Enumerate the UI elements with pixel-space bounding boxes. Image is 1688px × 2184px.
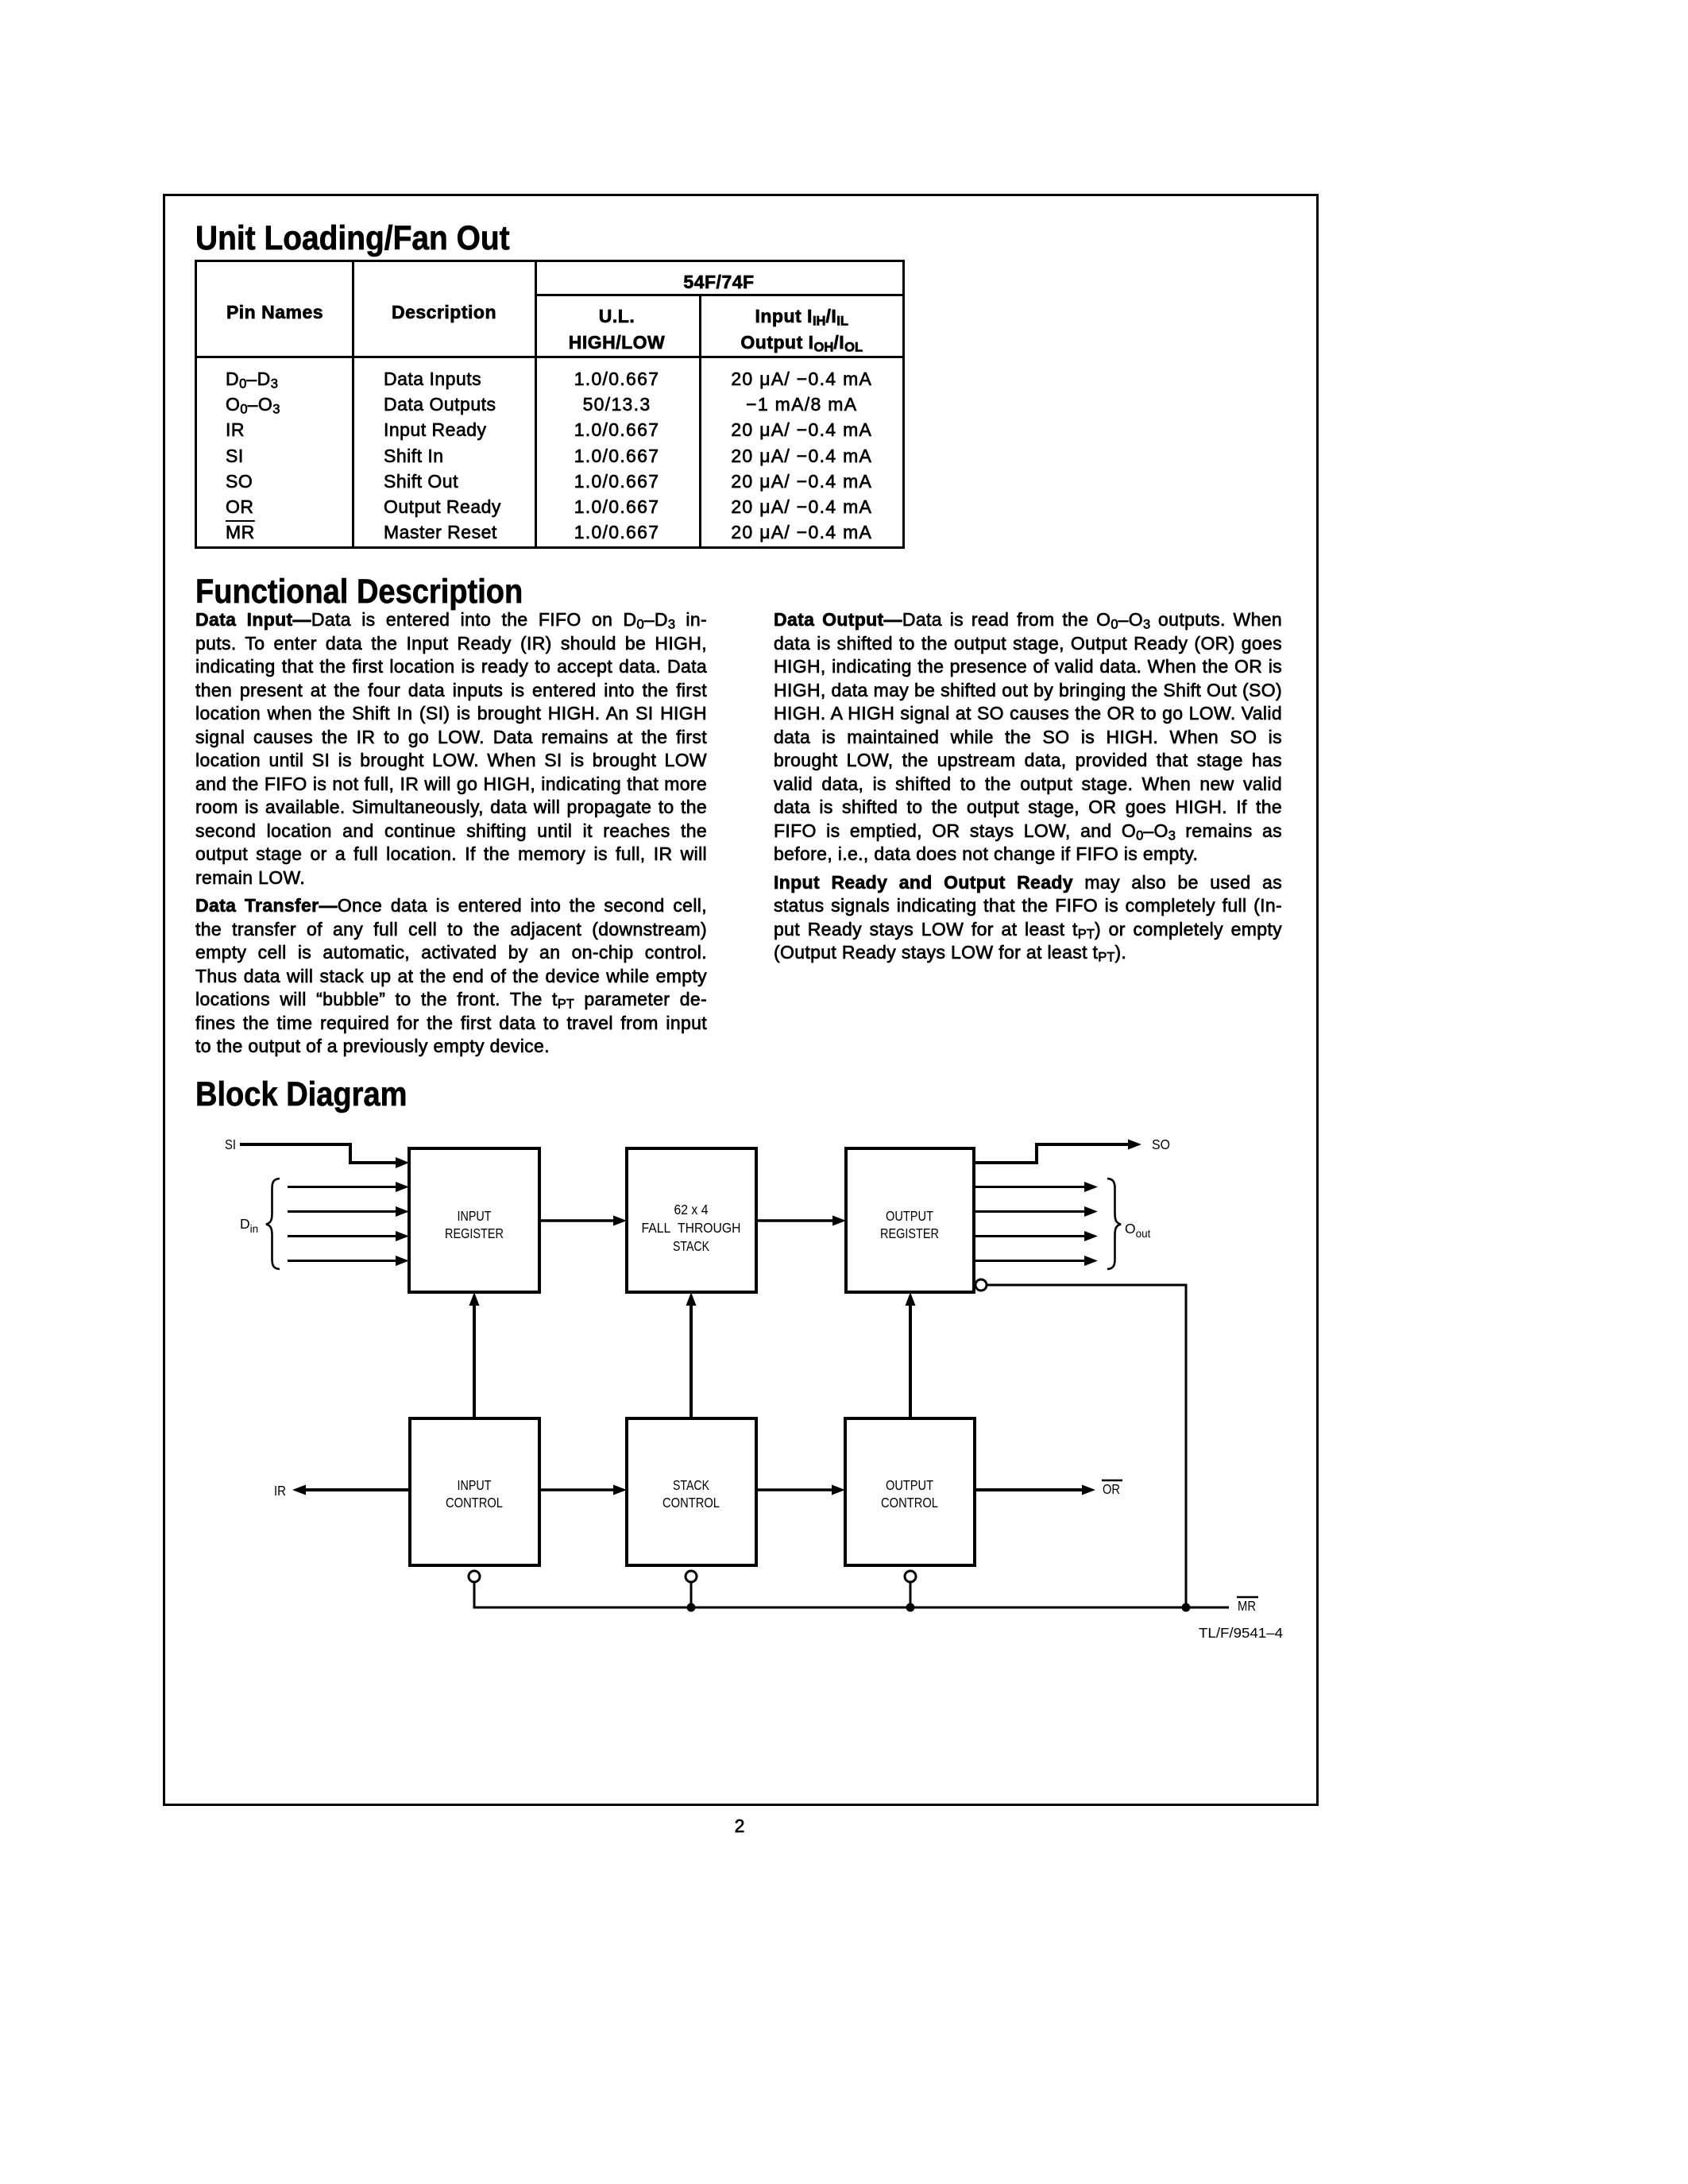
svg-text:OR: OR (1103, 1481, 1120, 1497)
svg-text:Din: Din (240, 1216, 258, 1235)
svg-text:REGISTER: REGISTER (445, 1225, 504, 1241)
svg-text:CONTROL: CONTROL (446, 1495, 503, 1511)
svg-text:STACK: STACK (673, 1477, 709, 1493)
svg-text:62 x 4: 62 x 4 (674, 1202, 709, 1217)
svg-text:Oout: Oout (1125, 1221, 1151, 1240)
svg-text:INPUT: INPUT (458, 1208, 492, 1224)
svg-text:SI: SI (225, 1136, 236, 1152)
svg-text:SO: SO (1152, 1136, 1170, 1152)
svg-text:CONTROL: CONTROL (662, 1495, 720, 1511)
svg-text:STACK: STACK (673, 1238, 709, 1254)
svg-text:OUTPUT: OUTPUT (886, 1208, 933, 1224)
svg-text:INPUT: INPUT (458, 1477, 492, 1493)
svg-text:IR: IR (274, 1483, 286, 1499)
svg-text:REGISTER: REGISTER (880, 1225, 939, 1241)
svg-text:TL/F/9541–4: TL/F/9541–4 (1199, 1625, 1283, 1641)
svg-text:FALL THROUGH: FALL THROUGH (642, 1220, 741, 1236)
svg-text:OUTPUT: OUTPUT (886, 1477, 933, 1493)
svg-text:CONTROL: CONTROL (881, 1495, 938, 1511)
svg-text:MR: MR (1238, 1598, 1256, 1614)
